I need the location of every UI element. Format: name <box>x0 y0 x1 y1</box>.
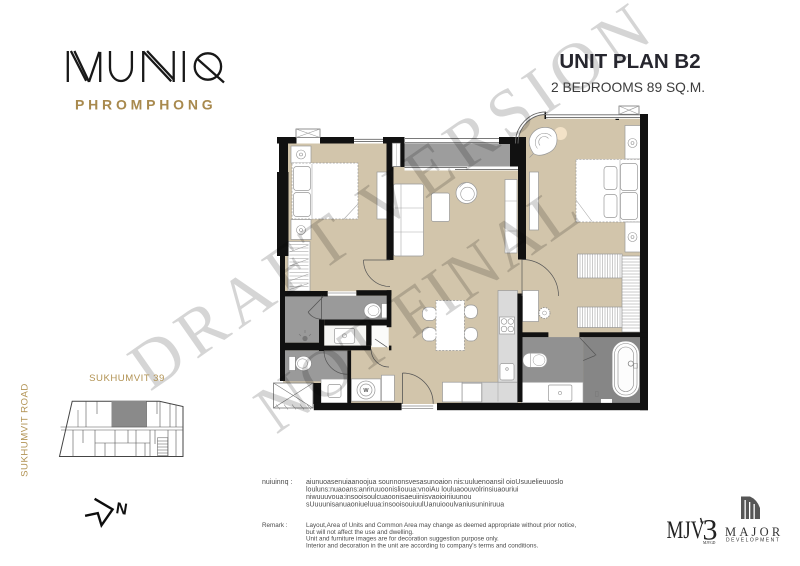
svg-text:louluns:nuaoans:anriruuoonisli: louluns:nuaoans:anriruuoonisliouua:vnoiA… <box>306 487 519 494</box>
svg-text:MJVGD: MJVGD <box>703 541 716 545</box>
svg-text:SUKHUMVIT ROAD: SUKHUMVIT ROAD <box>20 383 31 477</box>
svg-text:sUuuunisanuaoniueluua:insooiso: sUuuunisanuaoniueluua:insooisouiuulUanui… <box>306 502 504 509</box>
svg-text:PHROMPHONG: PHROMPHONG <box>75 97 216 113</box>
svg-text:UNIT PLAN B2: UNIT PLAN B2 <box>559 50 700 73</box>
svg-text:niwuuuvoua:insooisoulcuaoonisa: niwuuuvoua:insooisoulcuaoonisaeuiinisvao… <box>306 494 471 501</box>
svg-text:DEVELOPMENT: DEVELOPMENT <box>726 538 780 544</box>
svg-text:MJV: MJV <box>667 517 705 544</box>
svg-text:2 BEDROOMS 89 SQ.M.: 2 BEDROOMS 89 SQ.M. <box>551 80 705 95</box>
svg-text:SUKHUMVIT 39: SUKHUMVIT 39 <box>89 373 165 384</box>
svg-text:Interior and decoration in the: Interior and decoration in the unit are … <box>306 542 538 549</box>
svg-text:aiunuoasenuiaanoojua sounnonsv: aiunuoasenuiaanoojua sounnonsvesasunoaio… <box>306 479 563 486</box>
svg-text:nuiuinnq :: nuiuinnq : <box>262 479 292 486</box>
svg-text:Remark :: Remark : <box>262 522 288 529</box>
